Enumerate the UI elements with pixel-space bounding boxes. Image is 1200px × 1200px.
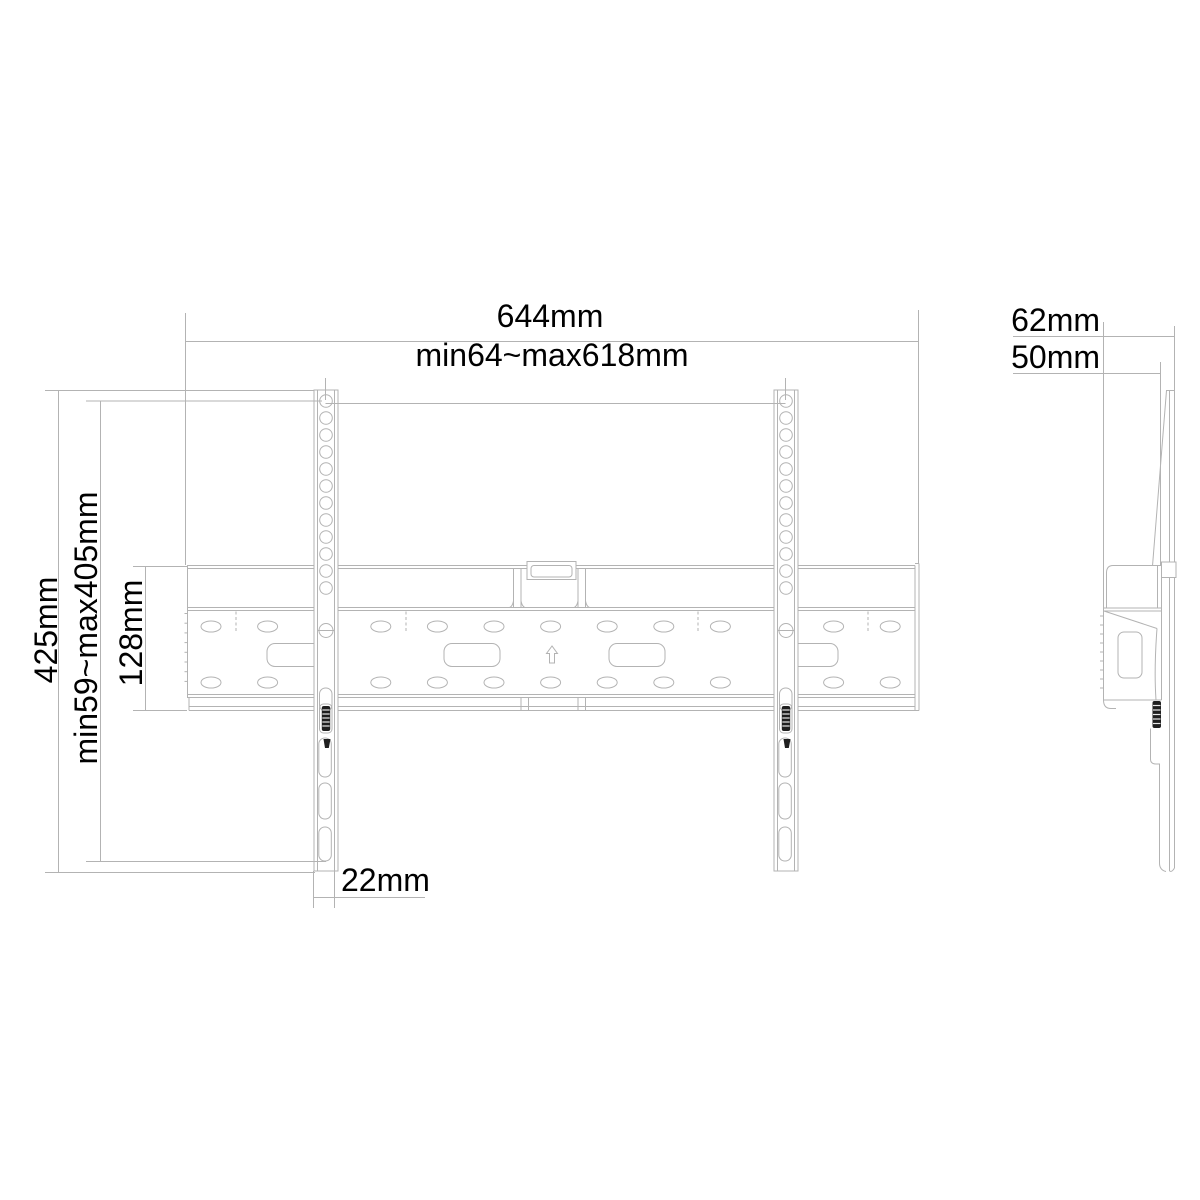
- dim-depth-rail: [1013, 362, 1161, 565]
- ellipse-shape: [427, 621, 447, 632]
- front-view: [185, 390, 920, 871]
- path-shape: [1107, 566, 1162, 609]
- dim-label-bracket-height: 425mm: [28, 577, 64, 684]
- dim-label-rail-height: 128mm: [113, 580, 149, 687]
- tilted-tv-profile: [1153, 391, 1167, 567]
- ellipse-shape: [484, 621, 504, 632]
- side-rail-serrations: [1100, 616, 1104, 688]
- dim-label-depth-total: 62mm: [1011, 302, 1100, 338]
- ellipse-shape: [541, 621, 561, 632]
- dim-label-rail-span: min64~max618mm: [416, 337, 689, 373]
- wall-rail: [185, 562, 920, 711]
- rect-shape: [609, 644, 665, 667]
- side-bracket-foot: [1151, 729, 1167, 872]
- ellipse-shape: [258, 621, 278, 632]
- side-rail-lid: [1107, 566, 1162, 609]
- dim-rail-span: [326, 378, 786, 404]
- ellipse-shape: [654, 621, 674, 632]
- path-shape: [521, 601, 525, 608]
- dim-label-depth-rail: 50mm: [1011, 339, 1100, 375]
- ellipse-shape: [824, 677, 844, 688]
- side-view: [1100, 390, 1176, 872]
- ellipse-shape: [880, 621, 900, 632]
- side-wall-plate: [1153, 390, 1175, 871]
- rect-shape: [444, 644, 500, 667]
- path-shape: [574, 601, 578, 608]
- right-tv-bracket: [774, 390, 798, 871]
- up-arrow-marker: [547, 646, 558, 663]
- ellipse-shape: [201, 621, 221, 632]
- rect-shape: [1118, 632, 1142, 678]
- side-rail-box: [1100, 608, 1162, 709]
- ellipse-shape: [597, 621, 617, 632]
- wall-mount-drawing: 644mm min64~max618mm 425mm min59~max405m…: [0, 0, 1200, 1200]
- rail-hook: [1162, 562, 1177, 578]
- technical-drawing-page: 644mm min64~max618mm 425mm min59~max405m…: [0, 0, 1200, 1200]
- ellipse-shape: [710, 677, 730, 688]
- ellipse-shape: [710, 621, 730, 632]
- dim-label-vertical-adjust: min59~max405mm: [68, 492, 104, 765]
- path-shape: [1104, 700, 1117, 709]
- ellipse-shape: [201, 677, 221, 688]
- dimension-labels: 644mm min64~max618mm 425mm min59~max405m…: [28, 298, 1100, 898]
- ellipse-shape: [824, 621, 844, 632]
- left-tv-bracket: [314, 390, 338, 871]
- dim-label-overall-width: 644mm: [497, 298, 604, 334]
- dimension-lines: [45, 310, 1175, 908]
- path-shape: [1155, 629, 1157, 701]
- ellipse-shape: [427, 677, 447, 688]
- ellipse-shape: [880, 677, 900, 688]
- ellipse-shape: [541, 677, 561, 688]
- path-shape: [510, 601, 514, 608]
- path-shape: [586, 601, 590, 608]
- path-shape: [1170, 868, 1175, 871]
- ellipse-shape: [258, 677, 278, 688]
- ellipse-shape: [654, 677, 674, 688]
- ellipse-shape: [371, 677, 391, 688]
- dim-label-bracket-width: 22mm: [341, 862, 430, 898]
- center-bottom-columns: [521, 698, 586, 711]
- ellipse-shape: [484, 677, 504, 688]
- ellipse-shape: [597, 677, 617, 688]
- ellipse-shape: [371, 621, 391, 632]
- line-shape: [1104, 611, 1157, 629]
- side-locking-screw: [1153, 701, 1162, 728]
